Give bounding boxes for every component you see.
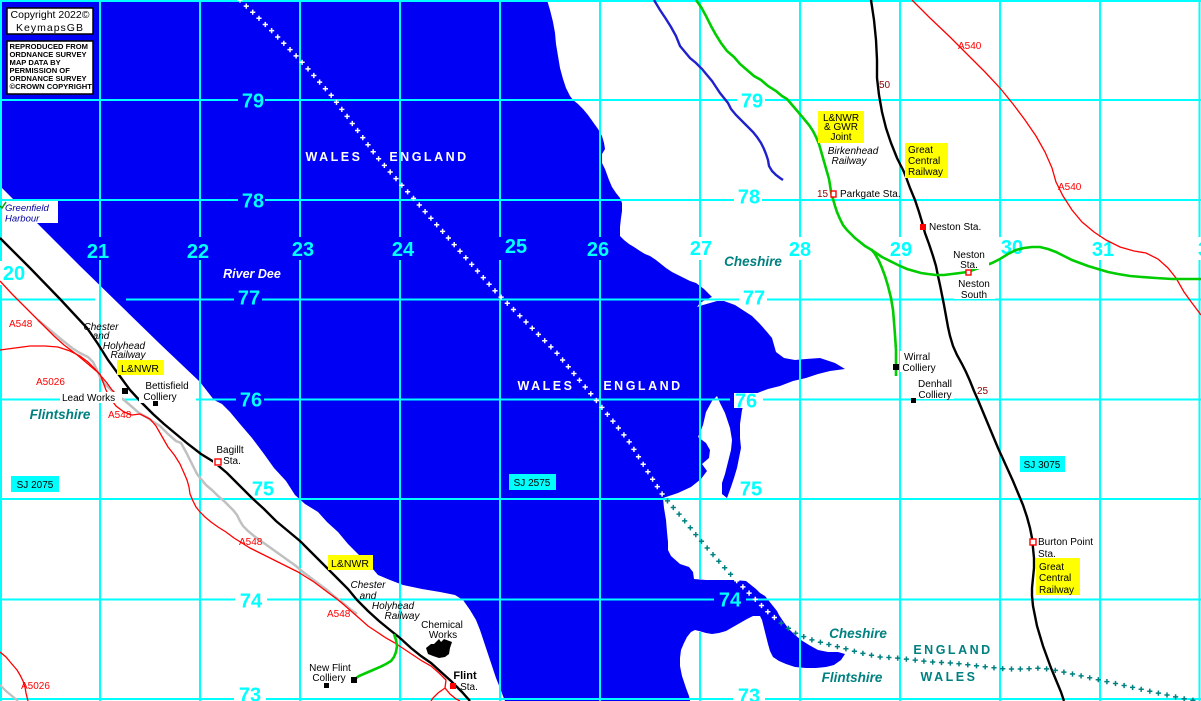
svg-text:A540: A540 <box>1058 182 1082 193</box>
svg-text:Colliery: Colliery <box>143 392 176 403</box>
svg-text:21: 21 <box>87 241 109 263</box>
svg-text:Neston Sta.: Neston Sta. <box>929 222 981 233</box>
svg-text:Parkgate Sta.: Parkgate Sta. <box>840 189 901 200</box>
svg-text:ENGLAND: ENGLAND <box>389 150 468 164</box>
svg-text:A540: A540 <box>958 41 982 52</box>
svg-text:Neston: Neston <box>958 279 990 290</box>
svg-text:Sta.: Sta. <box>460 682 478 693</box>
svg-text:SJ 3075: SJ 3075 <box>1024 460 1061 471</box>
svg-text:KeymapsGB: KeymapsGB <box>16 22 84 34</box>
svg-text:22: 22 <box>187 241 209 263</box>
svg-text:24: 24 <box>392 239 415 261</box>
svg-text:Flintshire: Flintshire <box>822 670 883 685</box>
svg-text:27: 27 <box>690 238 712 260</box>
svg-text:Cheshire: Cheshire <box>829 626 887 641</box>
svg-text:Cheshire: Cheshire <box>724 254 782 269</box>
svg-text:Railway: Railway <box>1039 585 1074 596</box>
svg-text:A548: A548 <box>9 319 33 330</box>
svg-text:A5026: A5026 <box>36 377 65 388</box>
svg-text:WALES: WALES <box>306 150 363 164</box>
svg-text:20: 20 <box>3 263 25 285</box>
svg-text:Sta.: Sta. <box>223 456 241 467</box>
svg-text:79: 79 <box>741 91 763 113</box>
svg-text:75: 75 <box>252 479 274 501</box>
svg-text:Works: Works <box>429 630 457 641</box>
svg-text:SJ 2075: SJ 2075 <box>17 480 54 491</box>
svg-text:Burton Point: Burton Point <box>1038 537 1093 548</box>
svg-text:28: 28 <box>789 239 811 261</box>
svg-text:76: 76 <box>735 391 757 413</box>
svg-text:L&NWR: L&NWR <box>331 558 369 570</box>
svg-text:Greenfield: Greenfield <box>5 203 50 214</box>
svg-text:Colliery: Colliery <box>312 673 345 684</box>
svg-text:Great: Great <box>1039 562 1064 573</box>
svg-text:Copyright 2022©: Copyright 2022© <box>11 9 90 21</box>
svg-text:L&NWR: L&NWR <box>121 363 159 375</box>
svg-text:76: 76 <box>240 390 262 412</box>
svg-text:SJ 2575: SJ 2575 <box>514 478 551 489</box>
svg-text:Lead Works: Lead Works <box>62 393 115 404</box>
svg-text:Central: Central <box>908 156 940 167</box>
svg-text:25: 25 <box>505 236 527 258</box>
svg-text:Flint: Flint <box>453 670 477 682</box>
svg-text:Central: Central <box>1039 573 1071 584</box>
svg-text:Railway: Railway <box>831 156 867 167</box>
svg-text:23: 23 <box>292 239 314 261</box>
svg-text:Harbour: Harbour <box>5 214 40 225</box>
svg-text:29: 29 <box>890 239 912 261</box>
svg-text:Chester: Chester <box>350 580 386 591</box>
svg-text:©CROWN COPYRIGHT: ©CROWN COPYRIGHT <box>10 82 93 91</box>
svg-text:A548: A548 <box>239 537 263 548</box>
svg-text:A548: A548 <box>108 410 132 421</box>
svg-text:ENGLAND: ENGLAND <box>603 379 682 393</box>
svg-text:Railway: Railway <box>384 611 420 622</box>
svg-text:26: 26 <box>587 239 609 261</box>
svg-text:15: 15 <box>817 189 829 200</box>
svg-text:25: 25 <box>977 386 989 397</box>
svg-text:Joint: Joint <box>830 132 851 143</box>
svg-text:Railway: Railway <box>908 167 943 178</box>
svg-text:79: 79 <box>242 91 264 113</box>
svg-text:78: 78 <box>242 191 264 213</box>
svg-text:WALES: WALES <box>518 379 575 393</box>
svg-text:50: 50 <box>879 80 891 91</box>
svg-text:ENGLAND: ENGLAND <box>913 643 992 657</box>
svg-text:75: 75 <box>740 479 762 501</box>
svg-text:A5026: A5026 <box>21 681 50 692</box>
svg-text:A548: A548 <box>327 609 351 620</box>
svg-text:Wirral: Wirral <box>904 352 930 363</box>
svg-text:74: 74 <box>240 591 263 613</box>
svg-text:74: 74 <box>719 590 742 612</box>
svg-text:Bagillt: Bagillt <box>216 445 243 456</box>
svg-text:73: 73 <box>738 686 760 701</box>
svg-text:South: South <box>961 290 987 301</box>
svg-text:Sta.: Sta. <box>1038 549 1056 560</box>
svg-text:Flintshire: Flintshire <box>30 407 91 422</box>
svg-text:77: 77 <box>238 288 260 310</box>
svg-text:78: 78 <box>738 187 760 209</box>
svg-text:Colliery: Colliery <box>902 363 935 374</box>
svg-text:Denhall: Denhall <box>918 379 952 390</box>
svg-text:73: 73 <box>239 685 261 701</box>
svg-text:WALES: WALES <box>921 670 978 684</box>
svg-text:Bettisfield: Bettisfield <box>145 381 188 392</box>
svg-text:River Dee: River Dee <box>223 267 281 281</box>
svg-text:Great: Great <box>908 145 933 156</box>
svg-text:77: 77 <box>743 288 765 310</box>
svg-text:Colliery: Colliery <box>918 390 951 401</box>
svg-text:Railway: Railway <box>110 350 146 361</box>
